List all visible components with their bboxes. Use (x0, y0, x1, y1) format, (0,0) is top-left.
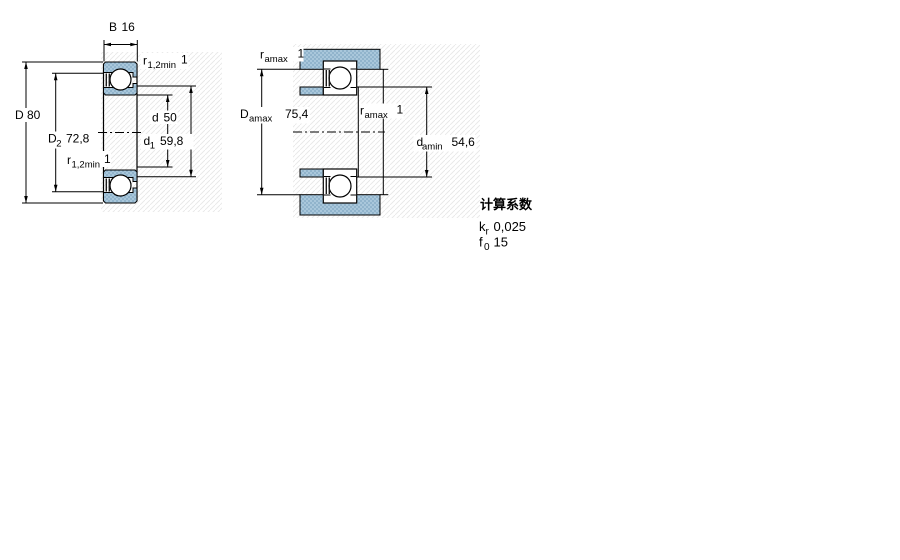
dim-D-label: D80 (15, 108, 41, 122)
drawing-hatch-background (293, 44, 480, 218)
dim-d-label: d50 (152, 111, 177, 125)
ball-top (110, 69, 131, 90)
bearing-cross-section-diagram: B16 r1,2min1 D80 D272,8 r1,2min1 d50 d15… (13, 20, 223, 212)
arrowhead (54, 73, 58, 80)
factor-f0: f015 (479, 235, 508, 254)
arrowhead (260, 188, 264, 195)
ball-bottom (329, 175, 351, 197)
shaft-shoulder-bottom (300, 169, 323, 177)
technical-drawing-canvas: B16 r1,2min1 D80 D272,8 r1,2min1 d50 d15… (0, 0, 900, 560)
arrowhead (54, 185, 58, 192)
calculation-factors: 计算系数 kr0,025 f015 (479, 197, 533, 253)
arrowhead (24, 62, 28, 69)
ball-bottom (110, 175, 131, 196)
arrowhead (24, 196, 28, 203)
arrowhead (104, 43, 111, 47)
mounted-bearing-diagram: ramax1 Damax75,4 ramax1 damin54,6 (237, 44, 480, 218)
arrowhead (130, 43, 137, 47)
drawing-page: B16 r1,2min1 D80 D272,8 r1,2min1 d50 d15… (0, 0, 900, 560)
shaft-shoulder-top (300, 87, 323, 95)
dim-B-label: B16 (109, 20, 135, 34)
factors-title: 计算系数 (480, 197, 533, 212)
ball-top (329, 67, 351, 89)
arrowhead (260, 69, 264, 76)
